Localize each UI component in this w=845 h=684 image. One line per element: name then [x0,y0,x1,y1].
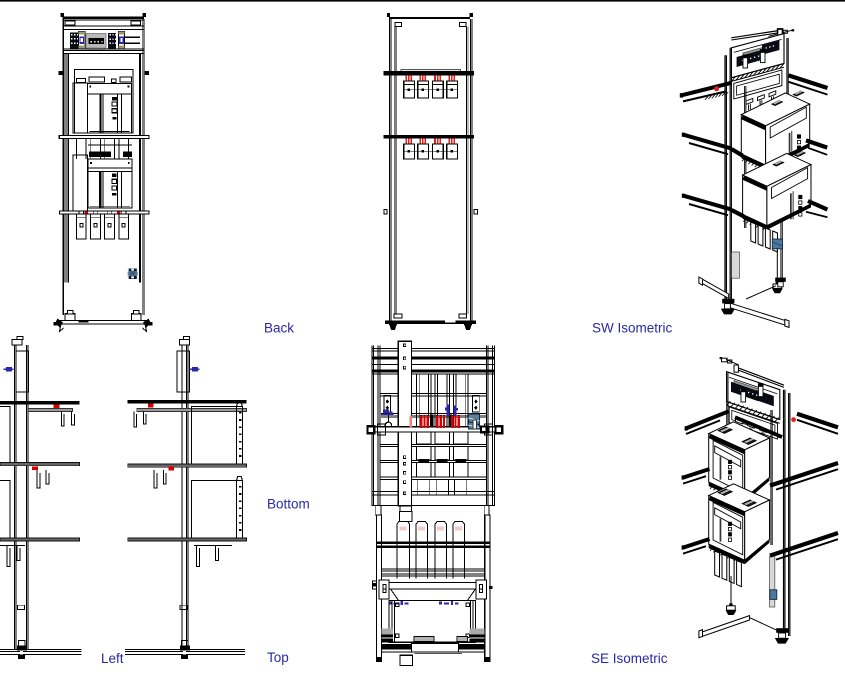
svg-text:SW Isometric: SW Isometric [592,321,673,336]
svg-text:Back: Back [264,321,294,336]
svg-text:SE Isometric: SE Isometric [591,651,668,666]
svg-text:Top: Top [267,650,289,665]
svg-text:Left: Left [101,651,124,666]
svg-text:Bottom: Bottom [267,497,310,512]
